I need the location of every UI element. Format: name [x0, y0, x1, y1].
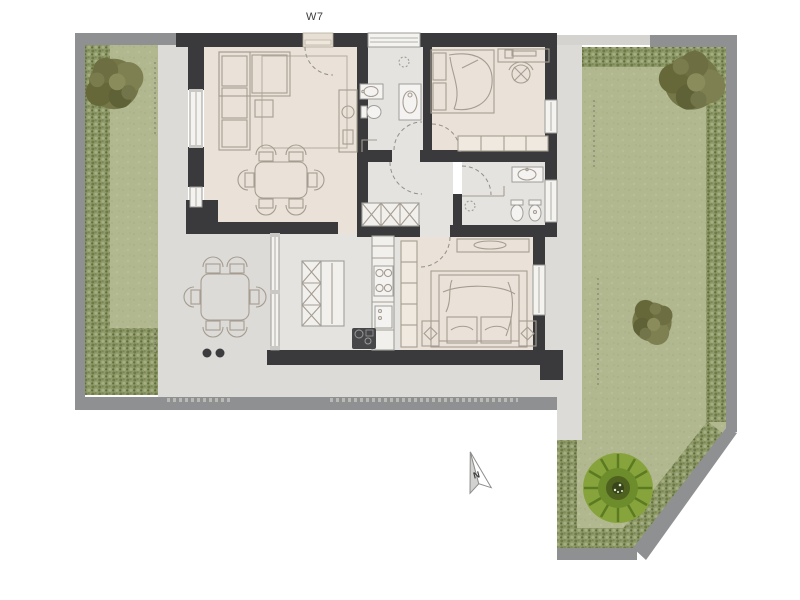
- floor-door-notch: [420, 225, 450, 237]
- boundary-wall-bottom-right: [557, 548, 637, 560]
- oven: [375, 306, 392, 328]
- boundary-wall-top-right: [650, 35, 737, 47]
- unit-label: W7: [306, 11, 324, 23]
- neighbor-wall: [557, 35, 650, 45]
- floor-bedroom-bottom: [400, 237, 533, 350]
- window-bathroom-right: [545, 180, 557, 222]
- hedge-left-lower: [557, 440, 577, 548]
- floor-door-notch: [392, 150, 420, 162]
- glass-wall-kitchen-terrace: [270, 233, 280, 350]
- floor-plan-page: N W7: [0, 0, 800, 600]
- planter: [216, 349, 225, 358]
- path-east-sliver: [545, 237, 557, 365]
- hob: [374, 266, 393, 296]
- washbasin: [360, 84, 383, 99]
- bidet: [529, 200, 541, 221]
- washbasin: [512, 167, 543, 182]
- hall-closet: [362, 203, 419, 226]
- closet: [401, 241, 417, 347]
- boundary-wall-bottom: [75, 397, 557, 410]
- sink-unit: [352, 328, 376, 349]
- window-bedroom-top: [545, 100, 557, 133]
- tree-bottom-green: [583, 453, 653, 523]
- boundary-wall-top-left: [75, 33, 178, 45]
- path-east: [557, 45, 582, 440]
- window-west-1: [189, 89, 203, 148]
- terrace-bottom-strip: [158, 365, 557, 397]
- window-west-2: [190, 187, 202, 207]
- shower: [399, 84, 421, 120]
- hallway-furniture: [362, 203, 419, 226]
- boundary-wall-left: [75, 33, 85, 410]
- floor-plan-canvas: N W7: [0, 0, 800, 600]
- toilet: [361, 106, 381, 119]
- floor-opening-living-kitchen: [338, 222, 358, 236]
- wardrobe: [458, 136, 548, 151]
- toilet: [511, 200, 523, 221]
- skylight-window: [368, 33, 420, 47]
- planter: [203, 349, 212, 358]
- window-bedroom-bottom: [533, 265, 545, 315]
- boundary-wall-right: [726, 35, 737, 432]
- island-with-stools: [302, 261, 344, 326]
- hedge-left-bottom: [85, 328, 158, 395]
- floor-living-room: [204, 47, 357, 222]
- north-arrow: N: [460, 449, 492, 493]
